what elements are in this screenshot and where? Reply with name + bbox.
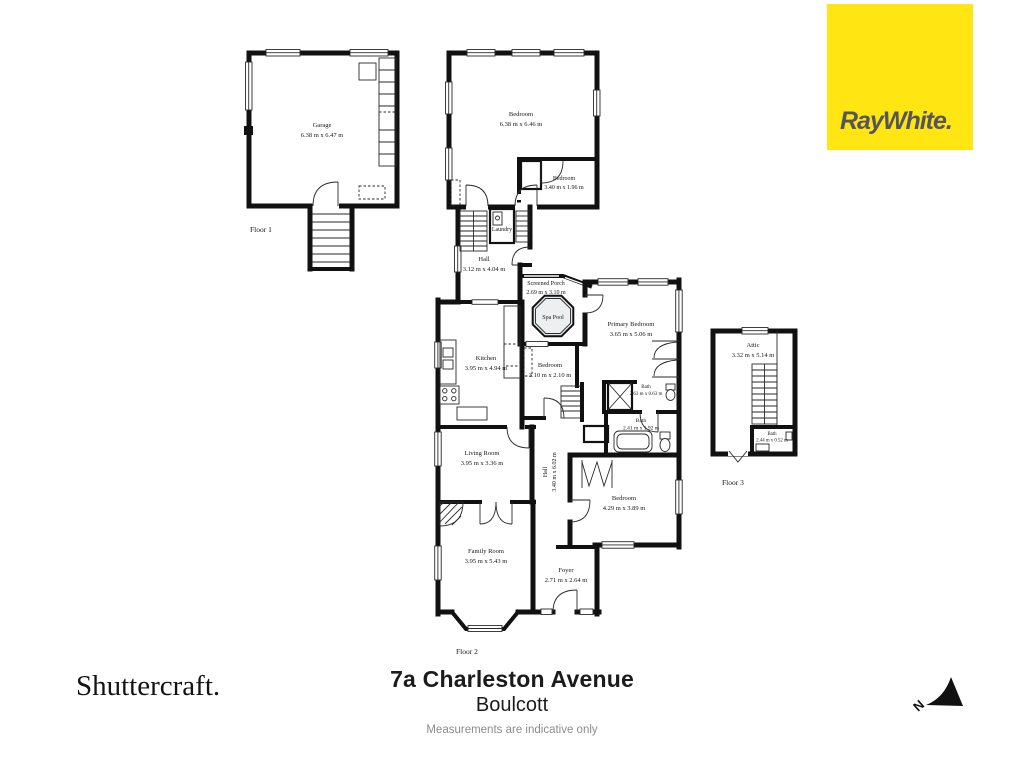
- room-label-garage: Garage: [313, 122, 332, 129]
- floor3-label: Floor 3: [722, 478, 744, 487]
- room-label-bath-attic: Bath: [767, 432, 777, 437]
- garage-door: [313, 182, 338, 206]
- room-dims-attic: 3.32 m x 5.14 m: [732, 352, 775, 359]
- shower-box: [608, 383, 632, 410]
- room-dims-kitchen: 3.95 m x 4.94 m: [465, 365, 508, 372]
- room-label-attic: Attic: [747, 342, 760, 349]
- kitchen-counters: [440, 306, 520, 420]
- room-dims-family-room: 3.95 m x 5.43 m: [465, 558, 508, 565]
- living-room-door: [507, 427, 529, 448]
- room-dims-foyer: 2.71 m x 2.64 m: [545, 577, 588, 584]
- room-label-bedroom-right: Bedroom: [612, 495, 636, 502]
- property-suburb: Boulcott: [312, 694, 712, 717]
- fireplace: [440, 502, 463, 526]
- room-dims-screened-porch: 2.69 m x 3.10 m: [526, 290, 566, 296]
- garage-exterior-stairs: [310, 206, 352, 269]
- room-dims-bedroom-f1-small: 3.40 m x 1.96 m: [544, 185, 584, 191]
- floor2-label: Floor 2: [456, 647, 478, 656]
- raywhite-logo-text: RayWhite.: [840, 107, 952, 136]
- floor1-label: Floor 1: [250, 225, 272, 234]
- garage-cabinet: [359, 63, 376, 80]
- raywhite-logo: RayWhite.: [827, 4, 973, 150]
- wall-nub: [244, 126, 253, 135]
- laundry-room: [490, 209, 514, 243]
- room-dims-primary-bedroom: 3.65 m x 5.06 m: [610, 331, 653, 338]
- room-dims-bath-small: 2.63 m x 0.63 m: [630, 392, 663, 397]
- room-label-bedroom-f1-small: Bedroom: [553, 176, 576, 182]
- room-label-bath-small: Bath: [641, 385, 651, 390]
- footer-address-block: 7a Charleston Avenue Boulcott Measuremen…: [312, 666, 712, 736]
- attic-bath-sink: [756, 444, 769, 451]
- room-label-foyer: Foyer: [558, 567, 574, 574]
- room-dims-hall-lower: 3.40 m x 6.02 m: [552, 452, 558, 492]
- attic-stairs: [752, 364, 777, 424]
- double-doors: [480, 502, 512, 524]
- room-label-hall-lower: Hall: [543, 467, 549, 478]
- floor1-garage-plan: [244, 50, 397, 270]
- primary-bedroom-door: [585, 295, 603, 313]
- room-label-kitchen: Kitchen: [476, 355, 497, 362]
- primary-wardrobes: [652, 341, 679, 377]
- garage-dashed-fixture: [359, 186, 385, 199]
- room-label-spa-pool: Spa Pool: [542, 315, 564, 321]
- room-dims-hall-upper: 3.12 m x 4.04 m: [463, 266, 506, 273]
- compass: N: [910, 677, 963, 714]
- small-bath-toilet: [666, 384, 675, 401]
- room-dims-bedroom-f1-large: 6.38 m x 6.46 m: [500, 121, 543, 128]
- bifold-closet: [582, 460, 612, 488]
- room-label-laundry: Laundry: [492, 227, 512, 233]
- room-dims-bath-main: 2.41 m x 1.92 m: [623, 426, 660, 432]
- north-arrow-icon: [926, 677, 963, 706]
- toilet: [660, 432, 670, 452]
- room-label-hall-upper: Hall: [478, 256, 489, 263]
- room-label-primary-bedroom: Primary Bedroom: [608, 321, 655, 328]
- shuttercraft-logo: Shuttercraft.: [76, 670, 220, 703]
- entry-door: [553, 590, 577, 612]
- room-label-bedroom-mid: Bedroom: [538, 362, 562, 369]
- hall-door: [512, 247, 530, 265]
- room-label-living-room: Living Room: [465, 450, 500, 457]
- bathtub: [614, 431, 652, 452]
- room-label-family-room: Family Room: [468, 548, 504, 555]
- room-dims-garage: 6.38 m x 6.47 m: [301, 132, 344, 139]
- measurements-disclaimer: Measurements are indicative only: [312, 724, 712, 736]
- floorplan-page: Garage 6.38 m x 6.47 m Bedroom 6.38 m x …: [0, 0, 1024, 768]
- room-label-bedroom-f1-large: Bedroom: [509, 111, 533, 118]
- room-label-bath-main: Bath: [636, 418, 647, 424]
- room-dims-bedroom-mid: 3.10 m x 2.10 m: [529, 372, 572, 379]
- room-label-screened-porch: Screened Porch: [527, 281, 565, 287]
- dashed-closet: [451, 180, 460, 206]
- hall-stairs: [460, 211, 487, 251]
- room-dims-living-room: 3.95 m x 3.36 m: [461, 460, 504, 467]
- garage-stairs: [379, 58, 396, 166]
- hall-stairs-right: [516, 211, 529, 242]
- right-bedroom-door: [570, 500, 590, 522]
- room-dims-bath-attic: 2.44 m x 0.52 m: [756, 439, 788, 444]
- compass-north-label: N: [910, 697, 927, 714]
- property-address: 7a Charleston Avenue: [312, 666, 712, 693]
- room-dims-bedroom-right: 4.29 m x 3.89 m: [603, 505, 646, 512]
